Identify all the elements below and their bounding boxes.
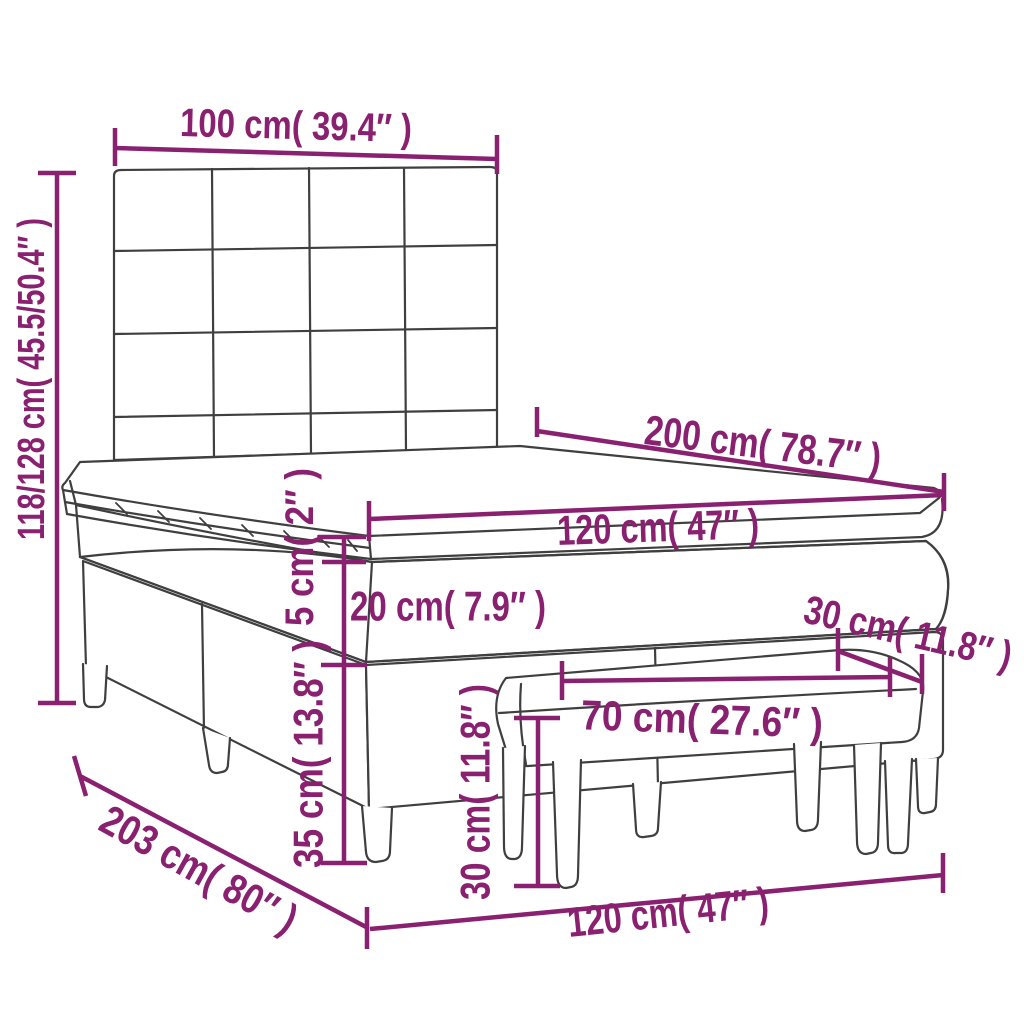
bench-leg-front-right — [854, 743, 881, 854]
dim-bed-height: 118/128 cm( 45.5/50.4″ ) — [11, 173, 76, 703]
bench-leg-rear-left — [503, 746, 525, 859]
dim-label-bench-height: 30 cm( 11.8″ ) — [452, 684, 499, 900]
dim-label-topper-height: 5 cm( 2″ ) — [278, 468, 322, 626]
bench-leg-front-left — [553, 760, 581, 888]
dim-label-bench-length: 70 cm( 27.6″ ) — [580, 691, 823, 746]
dim-label-total-length: 203 cm( 80″ ) — [92, 796, 305, 943]
bed-leg-foot-rear — [916, 758, 938, 813]
bed-leg-front-left — [83, 664, 107, 707]
bed-leg-front-right — [362, 806, 392, 862]
dim-label-bed-height: 118/128 cm( 45.5/50.4″ ) — [11, 218, 53, 540]
bed-dimension-diagram: 100 cm( 39.4″ ) 118/128 cm( 45.5/50.4″ )… — [0, 0, 1024, 1024]
dim-label-mattress-width: 120 cm( 47″ ) — [556, 500, 760, 554]
bed-drawing — [62, 167, 948, 888]
dim-label-bed-width: 120 cm( 47″ ) — [565, 878, 771, 946]
dim-label-mattress-height: 20 cm( 7.9″ ) — [350, 583, 546, 630]
dim-label-base-height: 35 cm( 13.8″ ) — [285, 640, 332, 868]
dim-headboard-width: 100 cm( 39.4″ ) — [115, 101, 497, 174]
bed-leg-foot-mid — [633, 782, 661, 837]
bench-leg-rear-right — [794, 742, 821, 831]
headboard — [114, 167, 497, 460]
dim-label-headboard-width: 100 cm( 39.4″ ) — [179, 101, 412, 151]
bed-leg-foot-right — [885, 759, 912, 853]
